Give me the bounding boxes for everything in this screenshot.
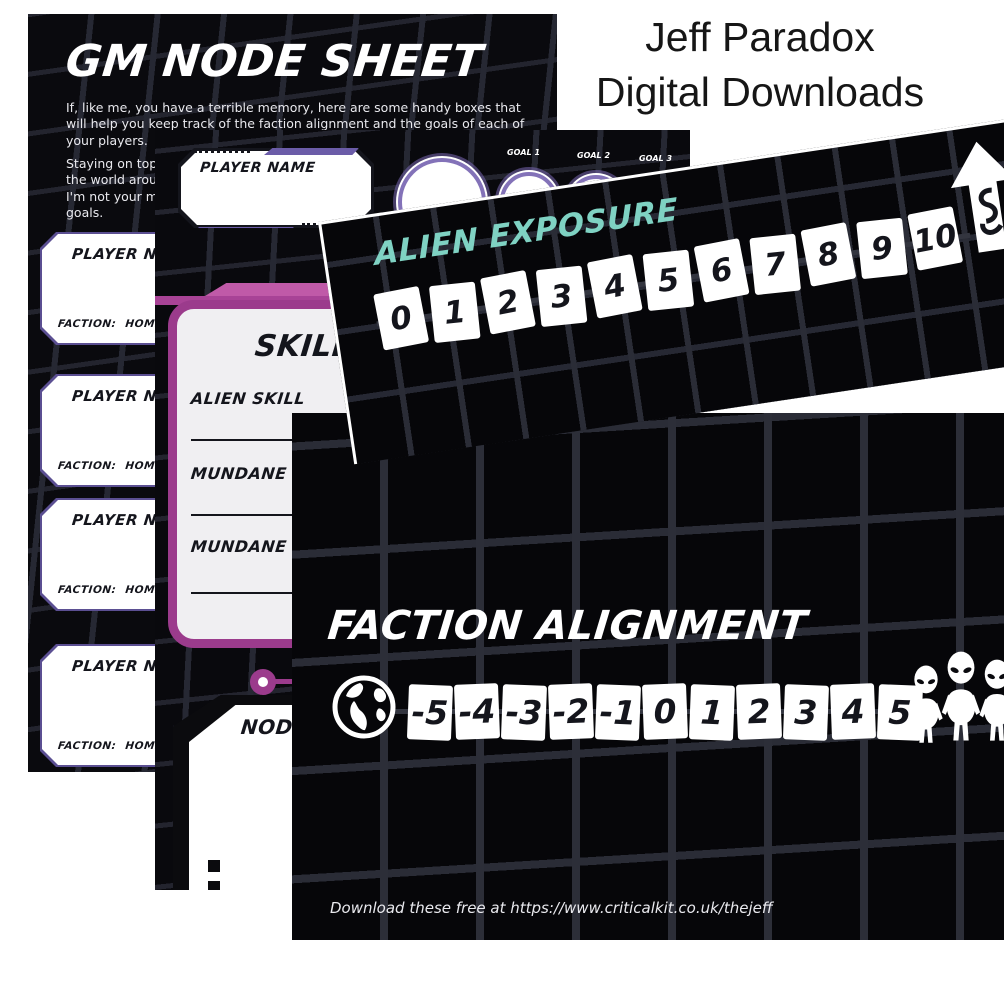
exposure-cell: 4 bbox=[587, 254, 643, 319]
faction-label: FACTION: bbox=[57, 318, 117, 330]
exposure-cell: 2 bbox=[480, 270, 536, 335]
alien-figures-icon bbox=[914, 649, 1004, 745]
faction-alignment-track: -5 -4 -3 -2 -1 0 1 2 3 4 5 bbox=[408, 684, 922, 739]
faction-alignment-title: FACTION ALIGNMENT bbox=[326, 603, 810, 649]
exposure-cell: 9 bbox=[856, 218, 908, 279]
purple-accent-bar bbox=[264, 147, 360, 155]
alignment-cell: 4 bbox=[830, 683, 876, 740]
alignment-cell: -1 bbox=[595, 684, 641, 741]
goal-3-label: GOAL 3 bbox=[639, 154, 672, 163]
exposure-cell: 0 bbox=[373, 286, 429, 351]
faction-label: FACTION: bbox=[57, 460, 117, 472]
brand-title: Jeff Paradox Digital Downloads bbox=[545, 10, 975, 121]
alignment-cell: -4 bbox=[454, 683, 500, 740]
exposure-cell: 5 bbox=[643, 250, 695, 311]
exposure-cell: 7 bbox=[749, 234, 801, 295]
alignment-cell: 0 bbox=[642, 683, 688, 740]
player-name-label: PLAYER NAME bbox=[199, 160, 316, 176]
faction-alignment-sheet: FACTION ALIGNMENT -5 -4 -3 -2 -1 0 1 2 3… bbox=[292, 413, 1004, 940]
alignment-cell: -2 bbox=[548, 683, 594, 740]
alignment-cell: -5 bbox=[407, 684, 453, 741]
faction-label: FACTION: bbox=[57, 740, 117, 752]
alignment-cell: 1 bbox=[689, 684, 735, 741]
promo-collage: GM NODE SHEET If, like me, you have a te… bbox=[0, 0, 1004, 1008]
square-decoration bbox=[208, 860, 220, 872]
earth-icon bbox=[330, 673, 398, 741]
alignment-cell: 2 bbox=[736, 683, 782, 740]
brand-line-2: Digital Downloads bbox=[545, 65, 975, 120]
exposure-cell: 1 bbox=[429, 282, 481, 343]
exposure-cell: 6 bbox=[694, 238, 750, 303]
faction-label: FACTION: bbox=[57, 584, 117, 596]
connector-node-dot bbox=[250, 669, 276, 695]
download-footer-text: Download these free at https://www.criti… bbox=[330, 899, 773, 917]
exposure-cell: 3 bbox=[536, 266, 588, 327]
square-decoration bbox=[208, 881, 220, 890]
exposure-cell: 8 bbox=[800, 222, 856, 287]
brand-line-1: Jeff Paradox bbox=[545, 10, 975, 65]
alignment-cell: -3 bbox=[501, 684, 547, 741]
goal-2-label: GOAL 2 bbox=[577, 151, 610, 160]
goal-1-label: GOAL 1 bbox=[507, 148, 540, 157]
alignment-cell: 3 bbox=[783, 684, 829, 741]
gm-sheet-title: GM NODE SHEET bbox=[63, 36, 485, 87]
player-name-box: PLAYER NAME bbox=[178, 148, 374, 228]
purple-accent-bar bbox=[198, 227, 294, 235]
tick-marks-decoration bbox=[194, 150, 250, 153]
